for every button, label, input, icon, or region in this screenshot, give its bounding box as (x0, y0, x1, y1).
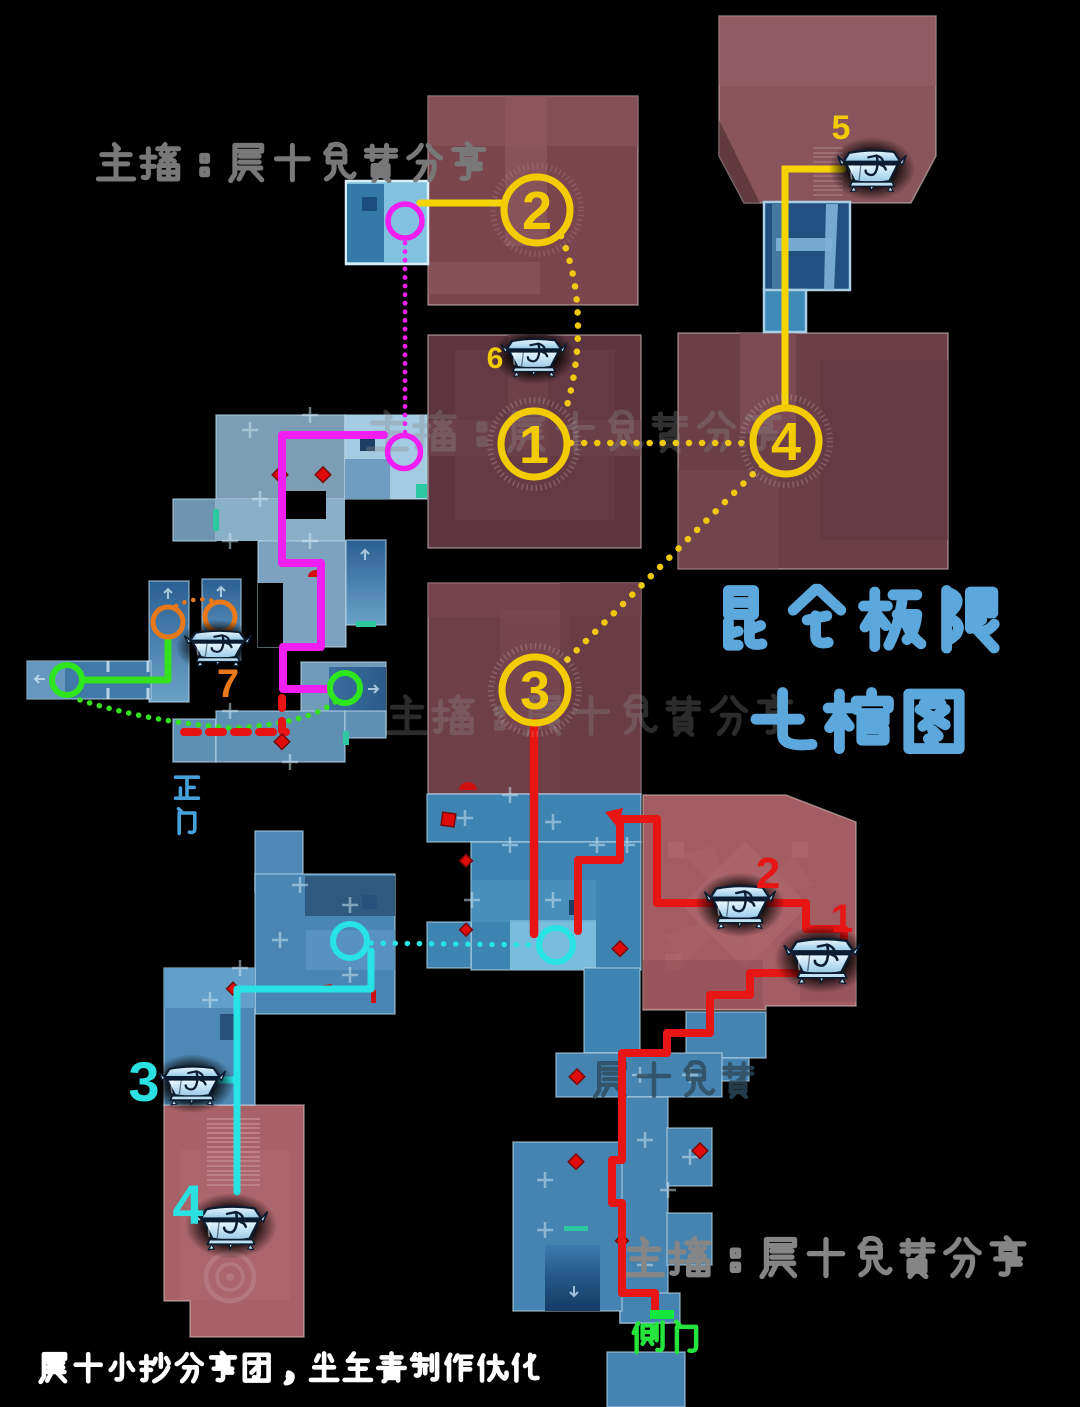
svg-text:2: 2 (522, 181, 552, 241)
svg-text:4: 4 (172, 1173, 203, 1236)
svg-text:1: 1 (519, 415, 549, 475)
svg-text:3: 3 (520, 661, 550, 721)
svg-text:6: 6 (487, 342, 504, 375)
svg-text:4: 4 (771, 412, 801, 472)
svg-text:5: 5 (832, 109, 851, 147)
svg-text:1: 1 (831, 897, 853, 941)
svg-text:7: 7 (217, 662, 239, 706)
svg-text:2: 2 (756, 849, 780, 898)
svg-text:3: 3 (128, 1050, 159, 1113)
